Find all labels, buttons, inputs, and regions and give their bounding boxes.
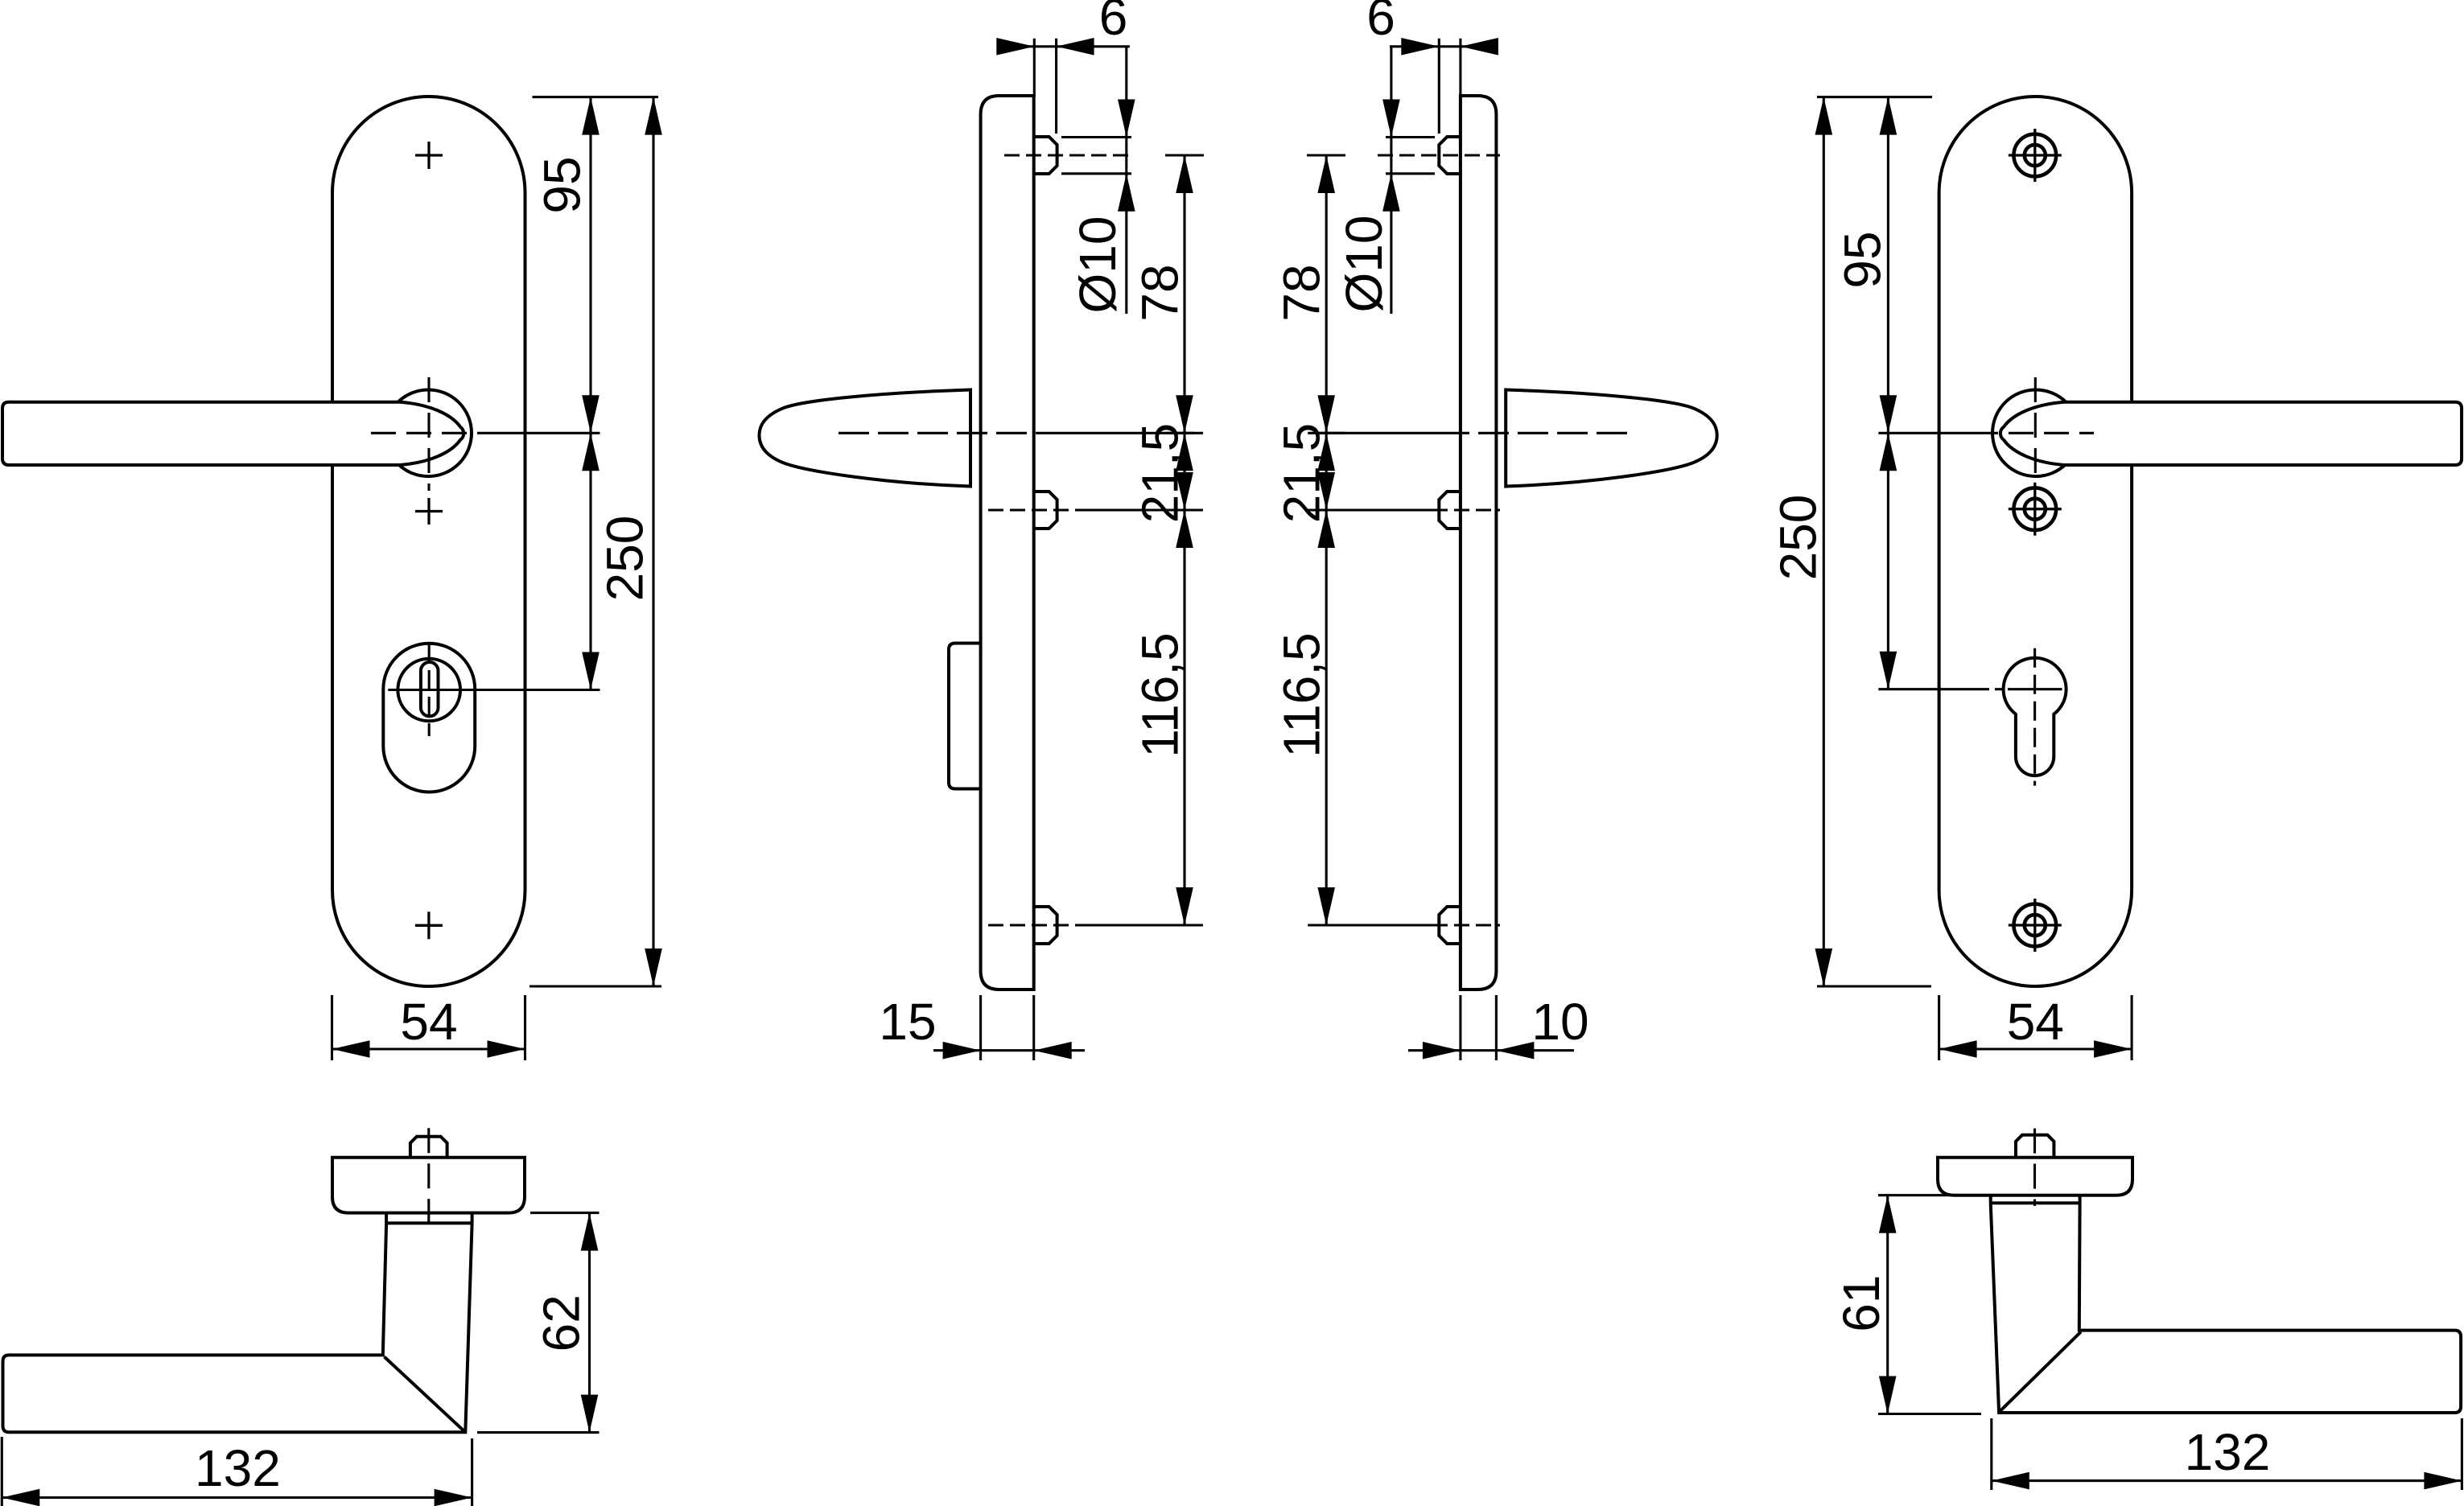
svg-text:62: 62 xyxy=(532,1294,590,1352)
svg-text:116,5: 116,5 xyxy=(1272,632,1330,757)
svg-text:10: 10 xyxy=(1531,993,1588,1051)
svg-text:250: 250 xyxy=(1770,495,1827,581)
svg-text:6: 6 xyxy=(1366,0,1395,46)
svg-text:116,5: 116,5 xyxy=(1131,632,1189,757)
svg-text:15: 15 xyxy=(879,993,936,1051)
svg-text:95: 95 xyxy=(1834,231,1892,288)
svg-text:132: 132 xyxy=(195,1439,281,1497)
svg-text:61: 61 xyxy=(1832,1275,1890,1332)
svg-text:132: 132 xyxy=(2185,1423,2271,1481)
svg-text:54: 54 xyxy=(400,993,457,1051)
svg-text:Ø10: Ø10 xyxy=(1335,216,1393,313)
svg-text:95: 95 xyxy=(533,156,591,213)
svg-text:250: 250 xyxy=(595,516,653,602)
svg-text:21,5: 21,5 xyxy=(1272,423,1330,524)
svg-text:54: 54 xyxy=(2007,993,2064,1051)
svg-text:6: 6 xyxy=(1099,0,1128,46)
svg-text:21,5: 21,5 xyxy=(1131,423,1189,524)
svg-text:78: 78 xyxy=(1131,264,1189,321)
svg-text:78: 78 xyxy=(1272,264,1330,321)
svg-text:Ø10: Ø10 xyxy=(1069,216,1127,314)
